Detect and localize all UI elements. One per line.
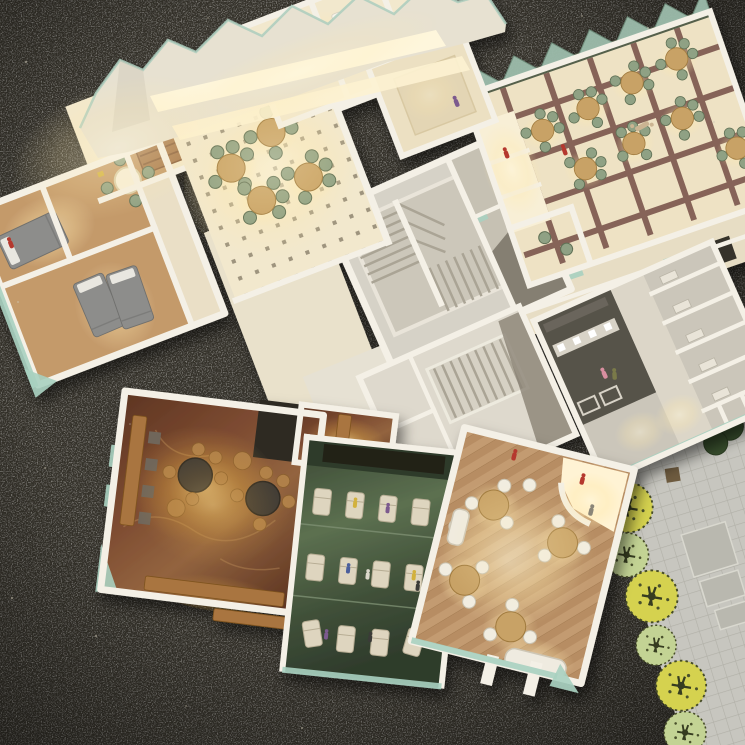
model-canvas <box>0 0 745 745</box>
plan-wood-deck <box>665 467 681 483</box>
scale-model-photo: Overhead photo of an illuminated archite… <box>0 0 745 745</box>
